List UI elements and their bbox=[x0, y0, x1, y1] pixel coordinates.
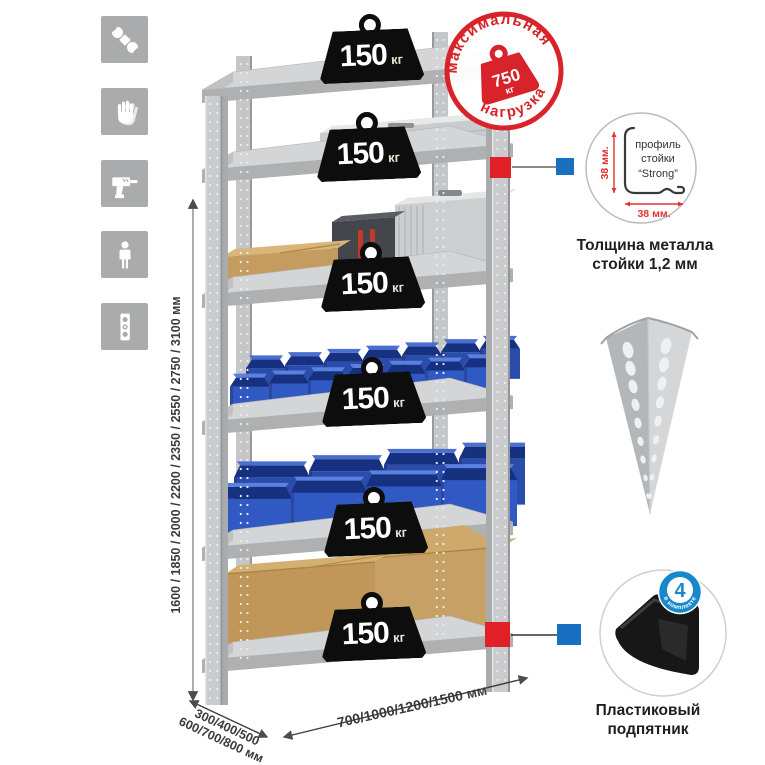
foot-marker-blue-square bbox=[557, 624, 581, 645]
shelf-3-load-badge: 150 кг bbox=[318, 240, 425, 316]
profile-marker-red-square bbox=[490, 157, 511, 178]
shelf-load-unit: кг bbox=[391, 52, 404, 68]
shelf-load-unit: кг bbox=[393, 630, 406, 646]
perforated-angle-post bbox=[598, 308, 702, 523]
shelf-6-load-badge: 150 кг bbox=[319, 590, 426, 666]
profile-caption-line-1: Толщина металла bbox=[550, 236, 740, 255]
profile-label-1: профиль bbox=[635, 139, 681, 151]
shelf-load-value: 150 bbox=[341, 381, 390, 417]
shelf-5-load-badge: 150 кг bbox=[321, 485, 428, 561]
weight-body: 150 кг bbox=[315, 126, 421, 182]
shelf-load-unit: кг bbox=[388, 150, 401, 166]
shelf-load-value: 150 bbox=[339, 38, 388, 74]
foot-caption: Пластиковый подпятник bbox=[553, 701, 743, 740]
shelf-load-value: 150 bbox=[340, 266, 389, 302]
shelf-load-unit: кг bbox=[395, 525, 408, 541]
foot-marker-red-square bbox=[485, 622, 510, 647]
profile-caption-line-2: стойки 1,2 мм bbox=[550, 255, 740, 274]
weight-body: 150 кг bbox=[320, 606, 426, 662]
weight-body: 150 кг bbox=[318, 28, 424, 84]
shelf-load-unit: кг bbox=[392, 280, 405, 296]
weight-body: 150 кг bbox=[319, 256, 425, 312]
foot-caption-line-2: подпятник bbox=[553, 720, 743, 739]
included-count-value: 4 bbox=[674, 580, 686, 602]
profile-label-3: “Strong” bbox=[638, 168, 678, 180]
profile-marker-blue-square bbox=[556, 158, 574, 175]
weight-body: 150 кг bbox=[320, 371, 426, 427]
shelf-load-value: 150 bbox=[336, 136, 385, 172]
height-dimension-label: 1600 / 1850 / 2000 / 2200 / 2350 / 2550 … bbox=[169, 296, 183, 613]
shelf-4-load-badge: 150 кг bbox=[319, 355, 426, 431]
weight-body: 150 кг bbox=[322, 501, 428, 557]
profile-caption: Толщина металла стойки 1,2 мм bbox=[550, 236, 740, 275]
profile-dim-horizontal: 38 мм. bbox=[637, 208, 670, 220]
shelf-load-unit: кг bbox=[393, 395, 406, 411]
shelf-load-value: 150 bbox=[343, 511, 392, 547]
profile-dim-vertical: 38 мм. bbox=[599, 146, 611, 179]
foot-caption-line-1: Пластиковый bbox=[553, 701, 743, 720]
included-count-badge: 4 в комплекте bbox=[657, 569, 703, 615]
post-profile-detail: 38 мм. 38 мм. профиль стойки “Strong” bbox=[584, 111, 698, 225]
shelf-load-value: 150 bbox=[341, 616, 390, 652]
shelf-2-load-badge: 150 кг bbox=[314, 110, 421, 186]
product-infographic: 150 кг 150 кг 150 кг 150 кг 150 кг bbox=[0, 0, 765, 765]
profile-label-2: стойки bbox=[641, 153, 675, 165]
shelf-1-load-badge: 150 кг bbox=[317, 12, 424, 88]
